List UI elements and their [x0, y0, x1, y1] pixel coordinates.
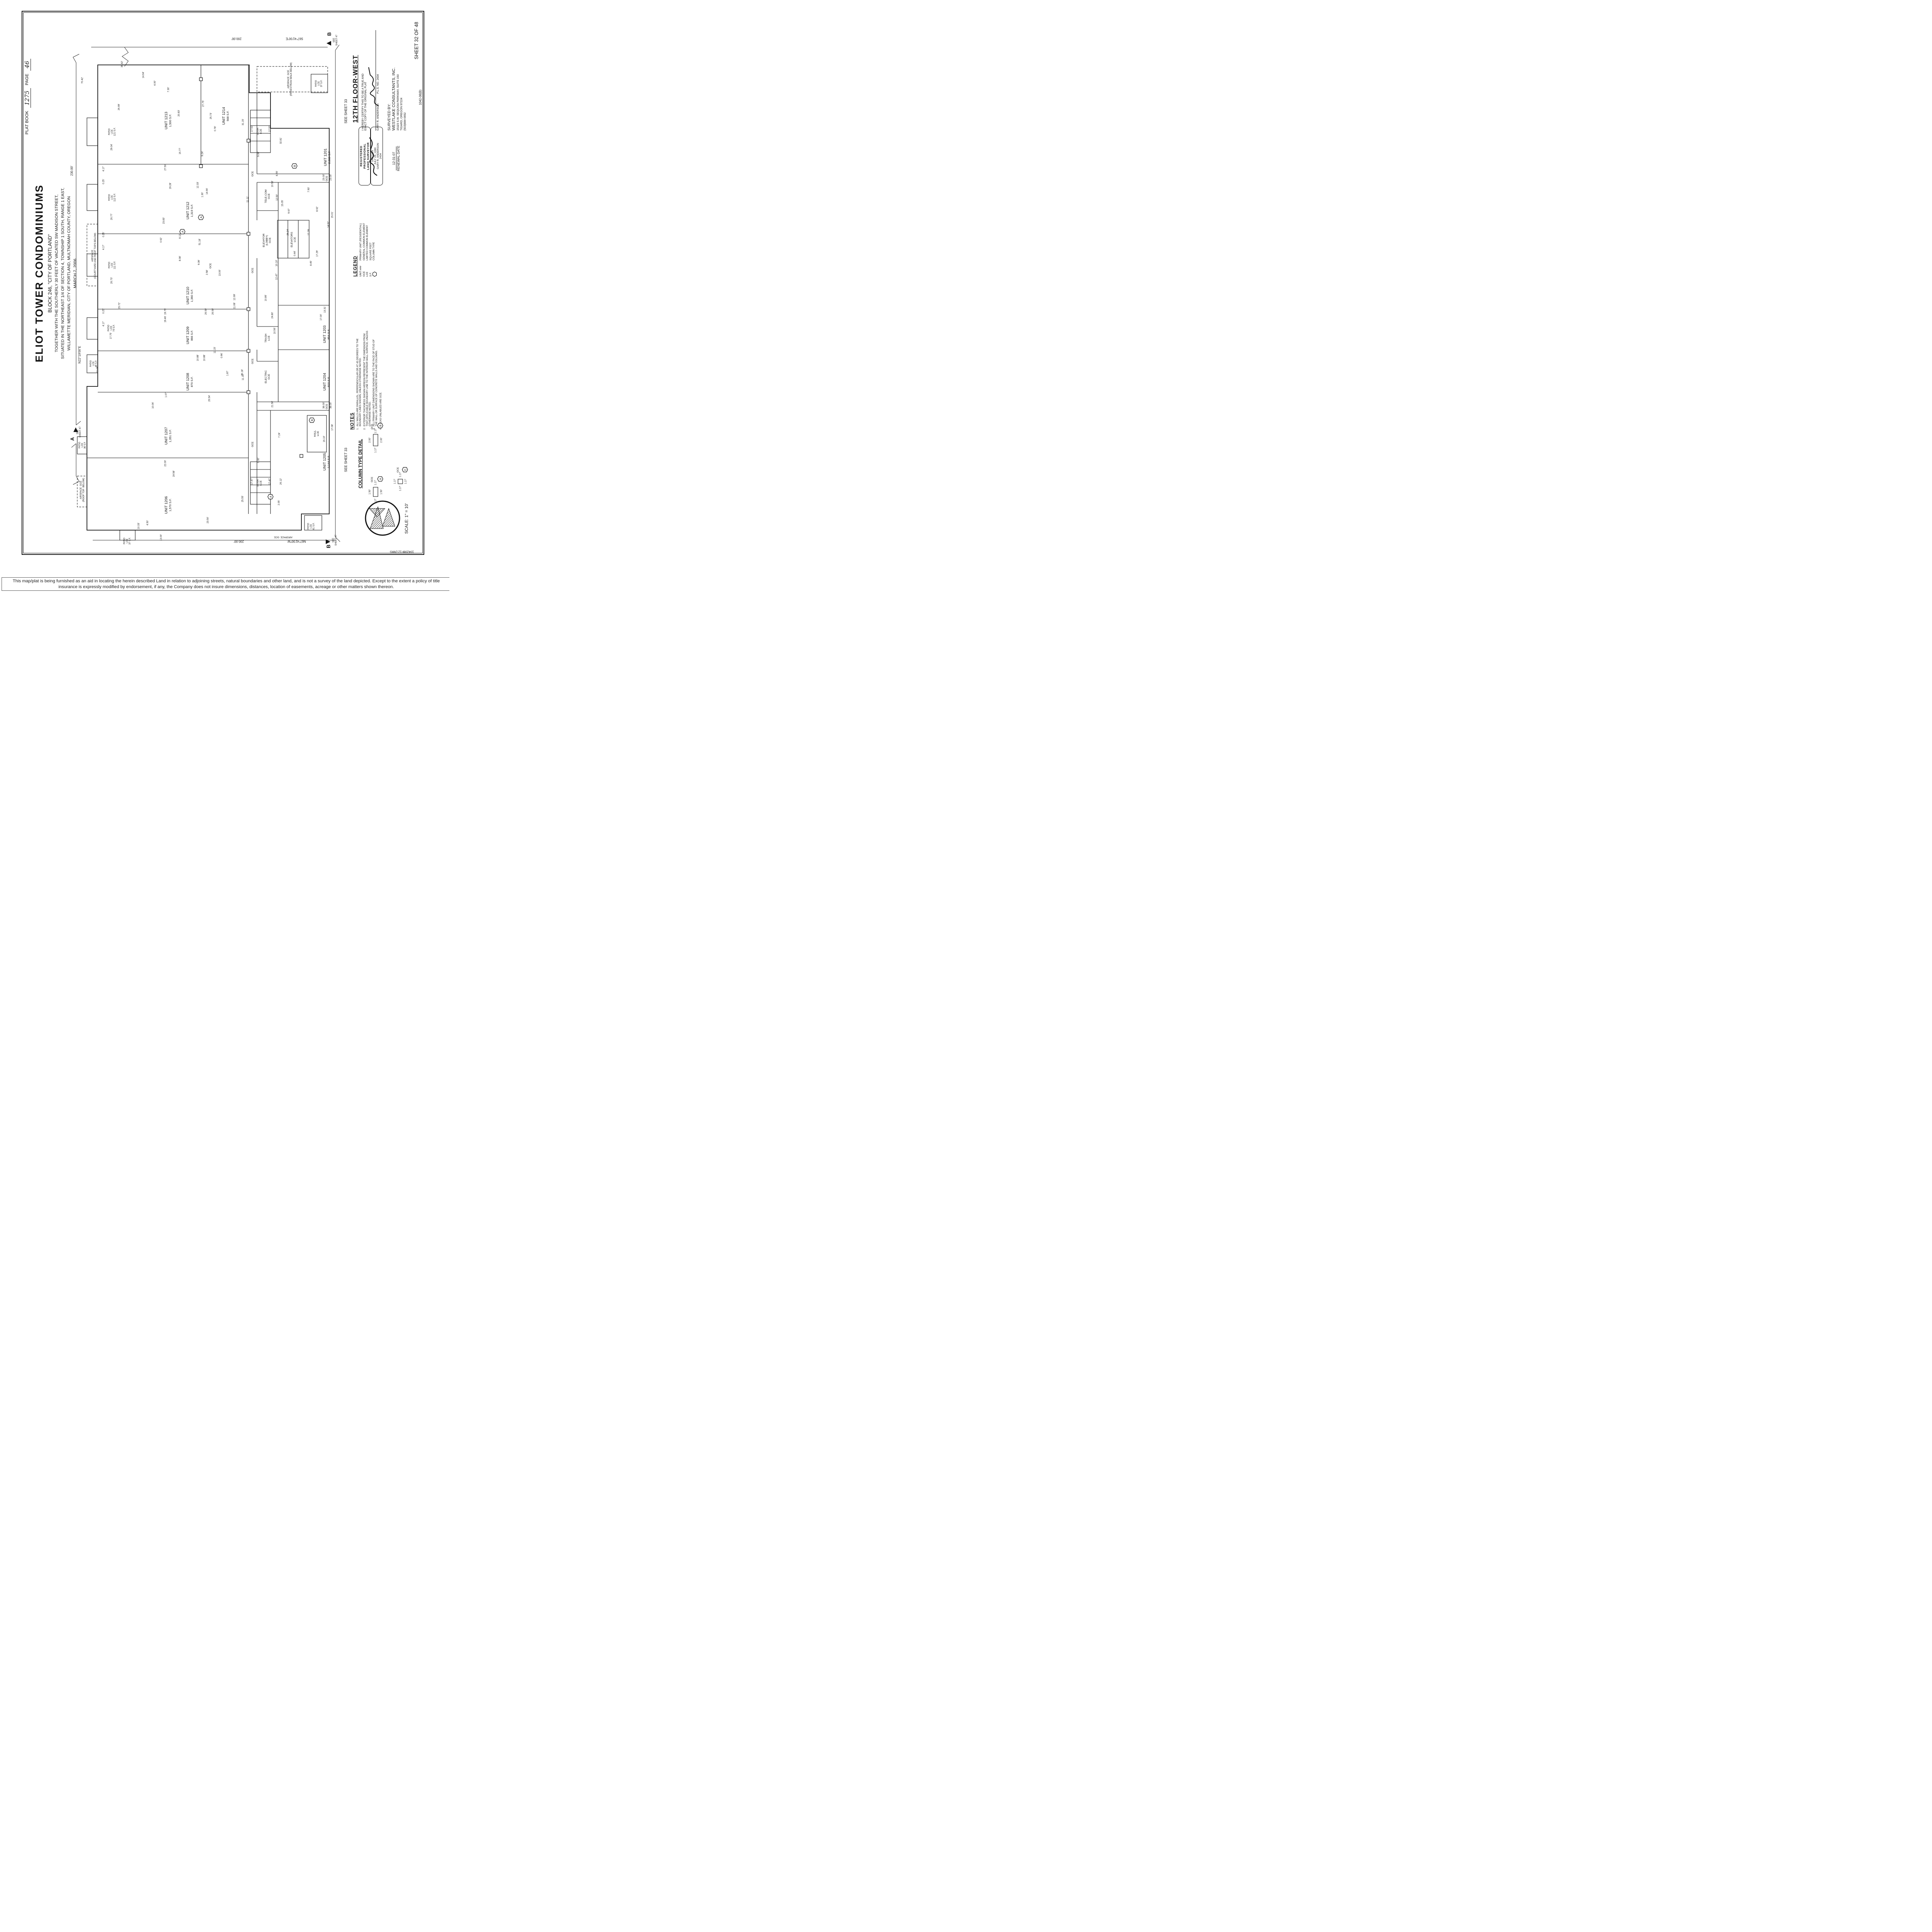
dimension-label: 1.17' [374, 480, 377, 485]
unit-label: UNIT 12071,351 S.F. [165, 427, 172, 445]
dimension-label: 17.47' [250, 478, 253, 485]
dimension-label: 9.39' [197, 260, 200, 265]
break-symbol [335, 45, 340, 542]
dimension-label: 1.87' [226, 371, 229, 376]
dimension-label: 21.50' [271, 401, 274, 408]
dimension-label: 13.00' [218, 270, 221, 276]
dimension-label: 23.00' [322, 174, 325, 181]
westlake-logo [366, 501, 400, 535]
dimension-label: 8.78' [276, 171, 278, 176]
patio-label: PATIO LCE 37 S.F. [124, 537, 132, 545]
patio-label: PATIO LCE 121 S.F. [109, 128, 117, 136]
dimension-label: 15.72' [118, 303, 121, 309]
dimension-label: 70.42' [81, 77, 83, 84]
note-item: 4. AREAS UNLABLED ARE GCE. [379, 254, 382, 430]
gce-label: GCE [251, 359, 254, 364]
unit-area: 2,060 S.F. [328, 148, 332, 166]
dimension-label: 10.88' [196, 355, 199, 361]
dimension-label: 7.93' [307, 187, 310, 192]
dimension-label: 1.50' [380, 489, 383, 494]
dimension-label: 12.15' [213, 347, 216, 354]
svg-text:A: A [379, 478, 382, 480]
gce-label: GCE [371, 424, 373, 429]
certification-line: EXACT COPY OF THE ORIGINAL PLAT [364, 30, 367, 131]
dimension-label: 51.18' [198, 239, 201, 245]
dimension-label: 17.08' [331, 424, 333, 431]
dimension-label: 26.50' [204, 308, 207, 315]
dimension-label: 19.46' [164, 316, 167, 323]
dimension-label: 17.52' [268, 126, 271, 132]
renewal-date-label: RENEWAL DATE [396, 131, 400, 186]
dimension-label: 17.00' [320, 314, 322, 321]
dimension-label: 26.73' [110, 277, 113, 284]
svg-text:A: A [181, 231, 184, 233]
patio-label: PATIO LCE 111 S.F. [109, 261, 117, 269]
dimension-label: 1.17' [374, 428, 377, 433]
dimension-label: 38.00' [322, 402, 325, 409]
unit-label: UNIT 1203854 S.F. [323, 325, 331, 343]
gce-label: GCE [251, 268, 254, 273]
airspace-label: AIRSPACE GCE (PEDESTRIAN WALK BELOW) [287, 63, 293, 96]
dimension-label: 19.75' [164, 308, 167, 315]
marker-arrows [73, 41, 331, 544]
dimension-label: 0.25' [102, 179, 105, 184]
dimension-label: 26.12' [279, 478, 282, 485]
see-sheet-33-label: SEE SHEET 33 [344, 99, 348, 124]
room-label: HALL LCE [314, 430, 320, 437]
room-label: STAIR LCE [257, 128, 263, 135]
unit-area: 1,319 S.F. [190, 202, 194, 219]
dimension-label: 12.50' [276, 194, 278, 201]
dimension-label: 11.10' [241, 374, 244, 381]
page-value: 46 [24, 59, 31, 71]
unit-label: UNIT 1204910 S.F. [323, 373, 331, 391]
dimension-label: 0.96' [220, 353, 223, 358]
dimension-label: 31.15' [241, 119, 244, 126]
dimension-label: 10.33' [137, 523, 140, 529]
dimension-label: 27.75' [202, 100, 204, 107]
dimension-label: 2.58' [206, 270, 208, 275]
dimension-label: 15.01' [331, 212, 333, 218]
see-sheet-33-label: SEE SHEET 33 [344, 448, 348, 472]
notes: NOTES 1. ALL WALLS ARE PARALLEL, PERPEND… [350, 254, 390, 430]
dimension-label: 9.67' [287, 208, 290, 213]
survey-address: 15115 S.W. SEQUOIA PARKWAY, SUITE 150 [396, 30, 400, 131]
unit-label: UNIT 12061,570 S.F. [165, 496, 172, 514]
survey-company: WESTLAKE CONSULTANTS, INC. [391, 30, 396, 131]
room-label: ELEVATOR (LOBBY) GCE [262, 233, 271, 247]
unit-label: UNIT 12012,060 S.F. [324, 148, 332, 166]
see-sheet-47-label: SEE SHEET 47 [333, 35, 338, 46]
gce-label: GCE [396, 467, 399, 473]
dimension-label: 26.77' [110, 214, 113, 220]
scale-label: SCALE: 1" = 10' [405, 503, 410, 534]
dimension-label: 10.88' [203, 355, 206, 361]
dimension-label: 1.17' [399, 472, 401, 477]
renewal-date-block: 12-31-07 RENEWAL DATE [392, 131, 402, 186]
certification-line: I HEREBY CERTIFY THIS TO BE A TRUE AND [362, 30, 364, 131]
building-outline [87, 65, 329, 530]
dimension-label: 1.17' [399, 486, 401, 491]
dimension-label: 8.45' [310, 260, 312, 265]
boundary-label: 230.00' [70, 166, 73, 176]
room-label: TRASH LCE [265, 333, 271, 342]
recorder-stamp: PLAT BOOK 1275 PAGE 46 [21, 22, 33, 134]
column-type-hexagon: A [267, 494, 274, 502]
description-line: TOGETHER WITH THE SOUTHERLY 30 FEET OF V… [54, 151, 59, 395]
dimension-label: 8.08' [179, 256, 181, 261]
unit-label: UNIT 12052,144 S.F. [323, 453, 331, 471]
break-symbol [73, 54, 79, 63]
dimension-label: 17.52' [250, 126, 253, 132]
dimension-label: 1.17' [374, 447, 377, 452]
title-insurance-disclaimer: This map/plat is being furnished as an a… [2, 577, 449, 591]
patio-label: PATIO LCE 74 S.F. [108, 325, 116, 332]
patio-label: PATIO LCE 36 S.F. [79, 442, 87, 449]
patio-label: PATIO LCE 46 S.F. [90, 360, 98, 367]
dimension-label: 14.64' [142, 72, 145, 78]
dimension-label: 17.79' [307, 229, 310, 236]
airspace-label: AIRSPACE GCE [274, 536, 293, 538]
boundary-label: 200.00' [231, 37, 241, 40]
plat-title: ELIOT TOWER CONDOMINIUMS [33, 151, 45, 395]
drawing-file-name: 104208F12.DWG [390, 550, 414, 553]
description-line: SITUATED IN THE NORTHEAST 1/4 OF SECTION… [60, 151, 65, 395]
renewal-date-value: 12-31-07 [392, 146, 396, 170]
dimension-label: 15.05' [281, 200, 284, 207]
note-item: 1. ALL WALLS ARE PARALLEL, PERPENDICULAR… [356, 254, 362, 430]
dimension-label: 13.00' [160, 534, 162, 541]
survey-address: TIGARD, OREGON 97224 [400, 30, 403, 131]
notes-body: 1. ALL WALLS ARE PARALLEL, PERPENDICULAR… [356, 254, 382, 430]
dimension-label: 0.25' [102, 232, 105, 237]
note-item: 2. EXTERIOR THICKNESS SHOWN HEREON REPRE… [363, 254, 371, 430]
unit-area: 910 S.F. [327, 373, 331, 391]
gce-label: GCE [325, 404, 328, 409]
gce-label: GCE [251, 442, 254, 447]
dimension-label: 22.00' [164, 460, 167, 467]
dimension-label: 0.62' [160, 237, 162, 242]
room-label: ELECTRIC GCE [265, 370, 271, 383]
dimension-label: 4.17' [102, 166, 105, 171]
signature [368, 65, 381, 107]
dimension-label: 14.52' [327, 221, 330, 228]
room-label: ELEVATORS LCE [291, 232, 297, 247]
patio-label: PATIO LCE 37 S.F. [315, 80, 323, 87]
dimension-label: 26.50' [211, 308, 214, 315]
svg-text:A: A [199, 216, 203, 218]
survey-phone: (503)684-0652 [403, 30, 406, 131]
plat-sheet-page: PLAT BOOK 1275 PAGE 46 ELIOT TOWER CONDO… [0, 0, 449, 600]
dimension-label: 26.54' [208, 395, 211, 402]
dimension-label: 13.31' [323, 306, 326, 313]
stamp-signature [368, 134, 379, 178]
dimension-label: 9.24' [201, 151, 204, 156]
certification-block: I HEREBY CERTIFY THIS TO BE A TRUE AND E… [362, 30, 386, 131]
dimension-label: 38.00' [329, 402, 332, 409]
surveyed-by-label: SURVEYED BY: [387, 30, 391, 131]
svg-text:C: C [403, 468, 407, 471]
sheet-number: SHEET 32 OF 48 [414, 22, 419, 59]
dimension-label: 10.56' [273, 328, 276, 334]
title-block: ELIOT TOWER CONDOMINIUMS BLOCK 246, "CIT… [33, 151, 75, 395]
unit-area: 870 S.F. [190, 373, 194, 391]
dimension-label: 1.50' [368, 489, 371, 494]
dimension-label: 23.00' [329, 174, 332, 181]
dimension-label: 9.00' [257, 151, 260, 156]
room-label: TELE-COM GCE [265, 189, 271, 203]
unit-area: 1,570 S.F. [169, 496, 172, 514]
description-line: WILLAMETTE MERIDIAN, CITY OF PORTLAND, M… [66, 151, 71, 395]
dimension-label: 20.83' [177, 110, 180, 117]
dimension-label: 19.28' [169, 183, 172, 189]
patio-label: PATIO LCE 41 S.F. [308, 523, 316, 530]
dimension-label: 0.44' [293, 251, 296, 256]
dimension-label: 23.83' [162, 218, 165, 224]
boundary-label: N67°41'00"W [287, 539, 306, 543]
svg-text:B: B [379, 425, 382, 427]
surveyor-stamp: REGISTERED PROFESSIONAL LAND SURVEYOR OR… [359, 127, 391, 185]
dimension-label: 24.80' [271, 312, 274, 319]
boundary-label: S67°41'00"E [286, 37, 303, 40]
dimension-label: 10.06' [151, 402, 154, 409]
airspace-label: AIRSPACE GCE (ROOF TOP BELOW) [80, 478, 85, 502]
page-label: PAGE [25, 74, 29, 85]
unit-area: 866 S.F. [190, 327, 194, 344]
dimension-label: 4.17' [102, 245, 105, 250]
dimension-label: 8.62' [316, 206, 318, 211]
dimension-label: 25.55' [241, 496, 244, 502]
dimension-label: 4.17' [102, 321, 105, 326]
column-type-hexagon: C [402, 467, 408, 474]
column-type-hexagon: A [377, 476, 383, 484]
dimension-label: 4.00' [153, 80, 156, 85]
boundary-label: N22°19'00"E [78, 346, 81, 363]
dimension-label: 26.24' [286, 229, 289, 236]
dimension-label: 14.66' [206, 188, 208, 195]
dimension-label: 9.00' [257, 457, 260, 463]
property-boundary [71, 45, 340, 542]
unit-label: UNIT 1208870 S.F. [186, 373, 194, 391]
dimension-label: 17.75' [109, 333, 112, 339]
dimension-label: 4.50' [146, 520, 149, 525]
plat-book-value: 1275 [24, 88, 31, 107]
unit-area: 568 S.F. [226, 107, 230, 125]
dimension-label: 32.81' [279, 138, 282, 144]
dimension-label: 1.17' [374, 498, 377, 503]
gce-label: GCE [371, 477, 373, 482]
svg-text:B: B [310, 419, 314, 421]
dimension-label: 11.08' [233, 303, 236, 309]
unit-area: 1,351 S.F. [169, 427, 172, 445]
airspace-label: AIRSPACE (COURTYARD AND ROOF TOPS BELOW) [91, 233, 97, 279]
dimension-label: 29.04' [110, 144, 113, 151]
unit-label: UNIT 1214568 S.F. [222, 107, 230, 125]
surveyed-by-block: SURVEYED BY: WESTLAKE CONSULTANTS, INC. … [387, 30, 411, 131]
section-marker-letter: B [326, 544, 332, 548]
plat-date: MARCH 7, 2006 [73, 151, 77, 395]
job-number: 1042-08(B) [418, 90, 422, 105]
dimension-label: 10.86' [264, 295, 267, 301]
dimension-label: 2.00' [380, 437, 383, 442]
break-symbol [73, 476, 79, 485]
column-type-hexagon: A [179, 229, 185, 236]
plat-book-label: PLAT BOOK [25, 111, 29, 134]
dimension-label: 2.05' [277, 500, 280, 505]
dimension-label: 27.50' [164, 164, 167, 171]
column-type-detail-heading: COLUMN TYPE DETAIL [358, 439, 363, 488]
dimension-label: 1.30' [201, 192, 204, 197]
dimension-label: 16.77' [179, 148, 181, 155]
dimension-label: 7.24' [278, 432, 281, 437]
dimension-label: 10.10' [275, 260, 278, 267]
dimension-label: 1.17' [404, 479, 407, 484]
dimension-label: 16.10' [323, 436, 325, 442]
notes-heading: NOTES [350, 254, 355, 430]
boundary-label: 200.00' [234, 539, 244, 543]
section-marker-letter: A [70, 437, 76, 440]
dimension-label: 25.73' [209, 113, 212, 119]
dimension-label: 1.17' [393, 479, 396, 484]
dimension-label: 2.00' [368, 437, 371, 442]
room-label: STAIR LCE [257, 479, 263, 487]
dimension-label: 12.47' [275, 274, 278, 280]
see-sheet-47-label: SEE SHEET 47 [332, 535, 338, 546]
svg-text:B: B [293, 165, 296, 167]
unit-area: 2,144 S.F. [327, 453, 331, 471]
unit-area: 1,500 S.F. [169, 112, 172, 129]
dimension-label: 39.42' [121, 61, 123, 68]
gce-label: GCE [209, 263, 212, 269]
dimension-label: 17.47' [268, 478, 271, 485]
column-type-hexagon: B [377, 423, 383, 430]
dimension-label: 12.33' [196, 182, 199, 189]
dimension-label: 12.69' [233, 294, 236, 301]
dimension-label: 26.69' [117, 104, 120, 111]
dimension-label: 1.07' [165, 392, 167, 397]
block-line: BLOCK 246, "CITY OF PORTLAND" [47, 151, 53, 395]
unit-area: 1,360 S.F. [190, 287, 194, 304]
dimension-label: 0.25' [102, 308, 105, 313]
dimension-label: 0.78' [214, 126, 216, 131]
unit-label: UNIT 12131,500 S.F. [165, 112, 172, 129]
gce-label: GCE [251, 171, 254, 177]
unit-label: UNIT 12101,360 S.F. [186, 287, 194, 304]
unit-label: UNIT 1209866 S.F. [186, 327, 194, 344]
gce-label: GCE [325, 176, 328, 181]
unit-label: UNIT 12121,319 S.F. [186, 202, 194, 219]
dimension-label: 23.50' [206, 517, 209, 524]
dimension-label: 10.53' [271, 181, 274, 187]
svg-text:A: A [269, 496, 272, 498]
dimension-label: 11.11' [246, 196, 249, 202]
dimension-label: 19.58' [172, 471, 175, 477]
section-marker-letter: B [327, 32, 333, 36]
column-type-hexagon: B [309, 418, 315, 425]
dimension-label: 7.30' [167, 87, 170, 92]
note-item: 3. ALL PRIMARY UNIT DIMENSIONS SHOWN ARE… [372, 254, 378, 430]
unit-area: 854 S.F. [327, 325, 331, 343]
column-type-hexagon: A [198, 215, 204, 222]
see-sheet-47-label: SEE SHEET 47 [77, 427, 82, 437]
column-type-hexagon: B [291, 163, 298, 171]
dimension-label: 17.29' [316, 250, 318, 257]
patio-label: PATIO LCE 112 S.F. [109, 193, 117, 202]
